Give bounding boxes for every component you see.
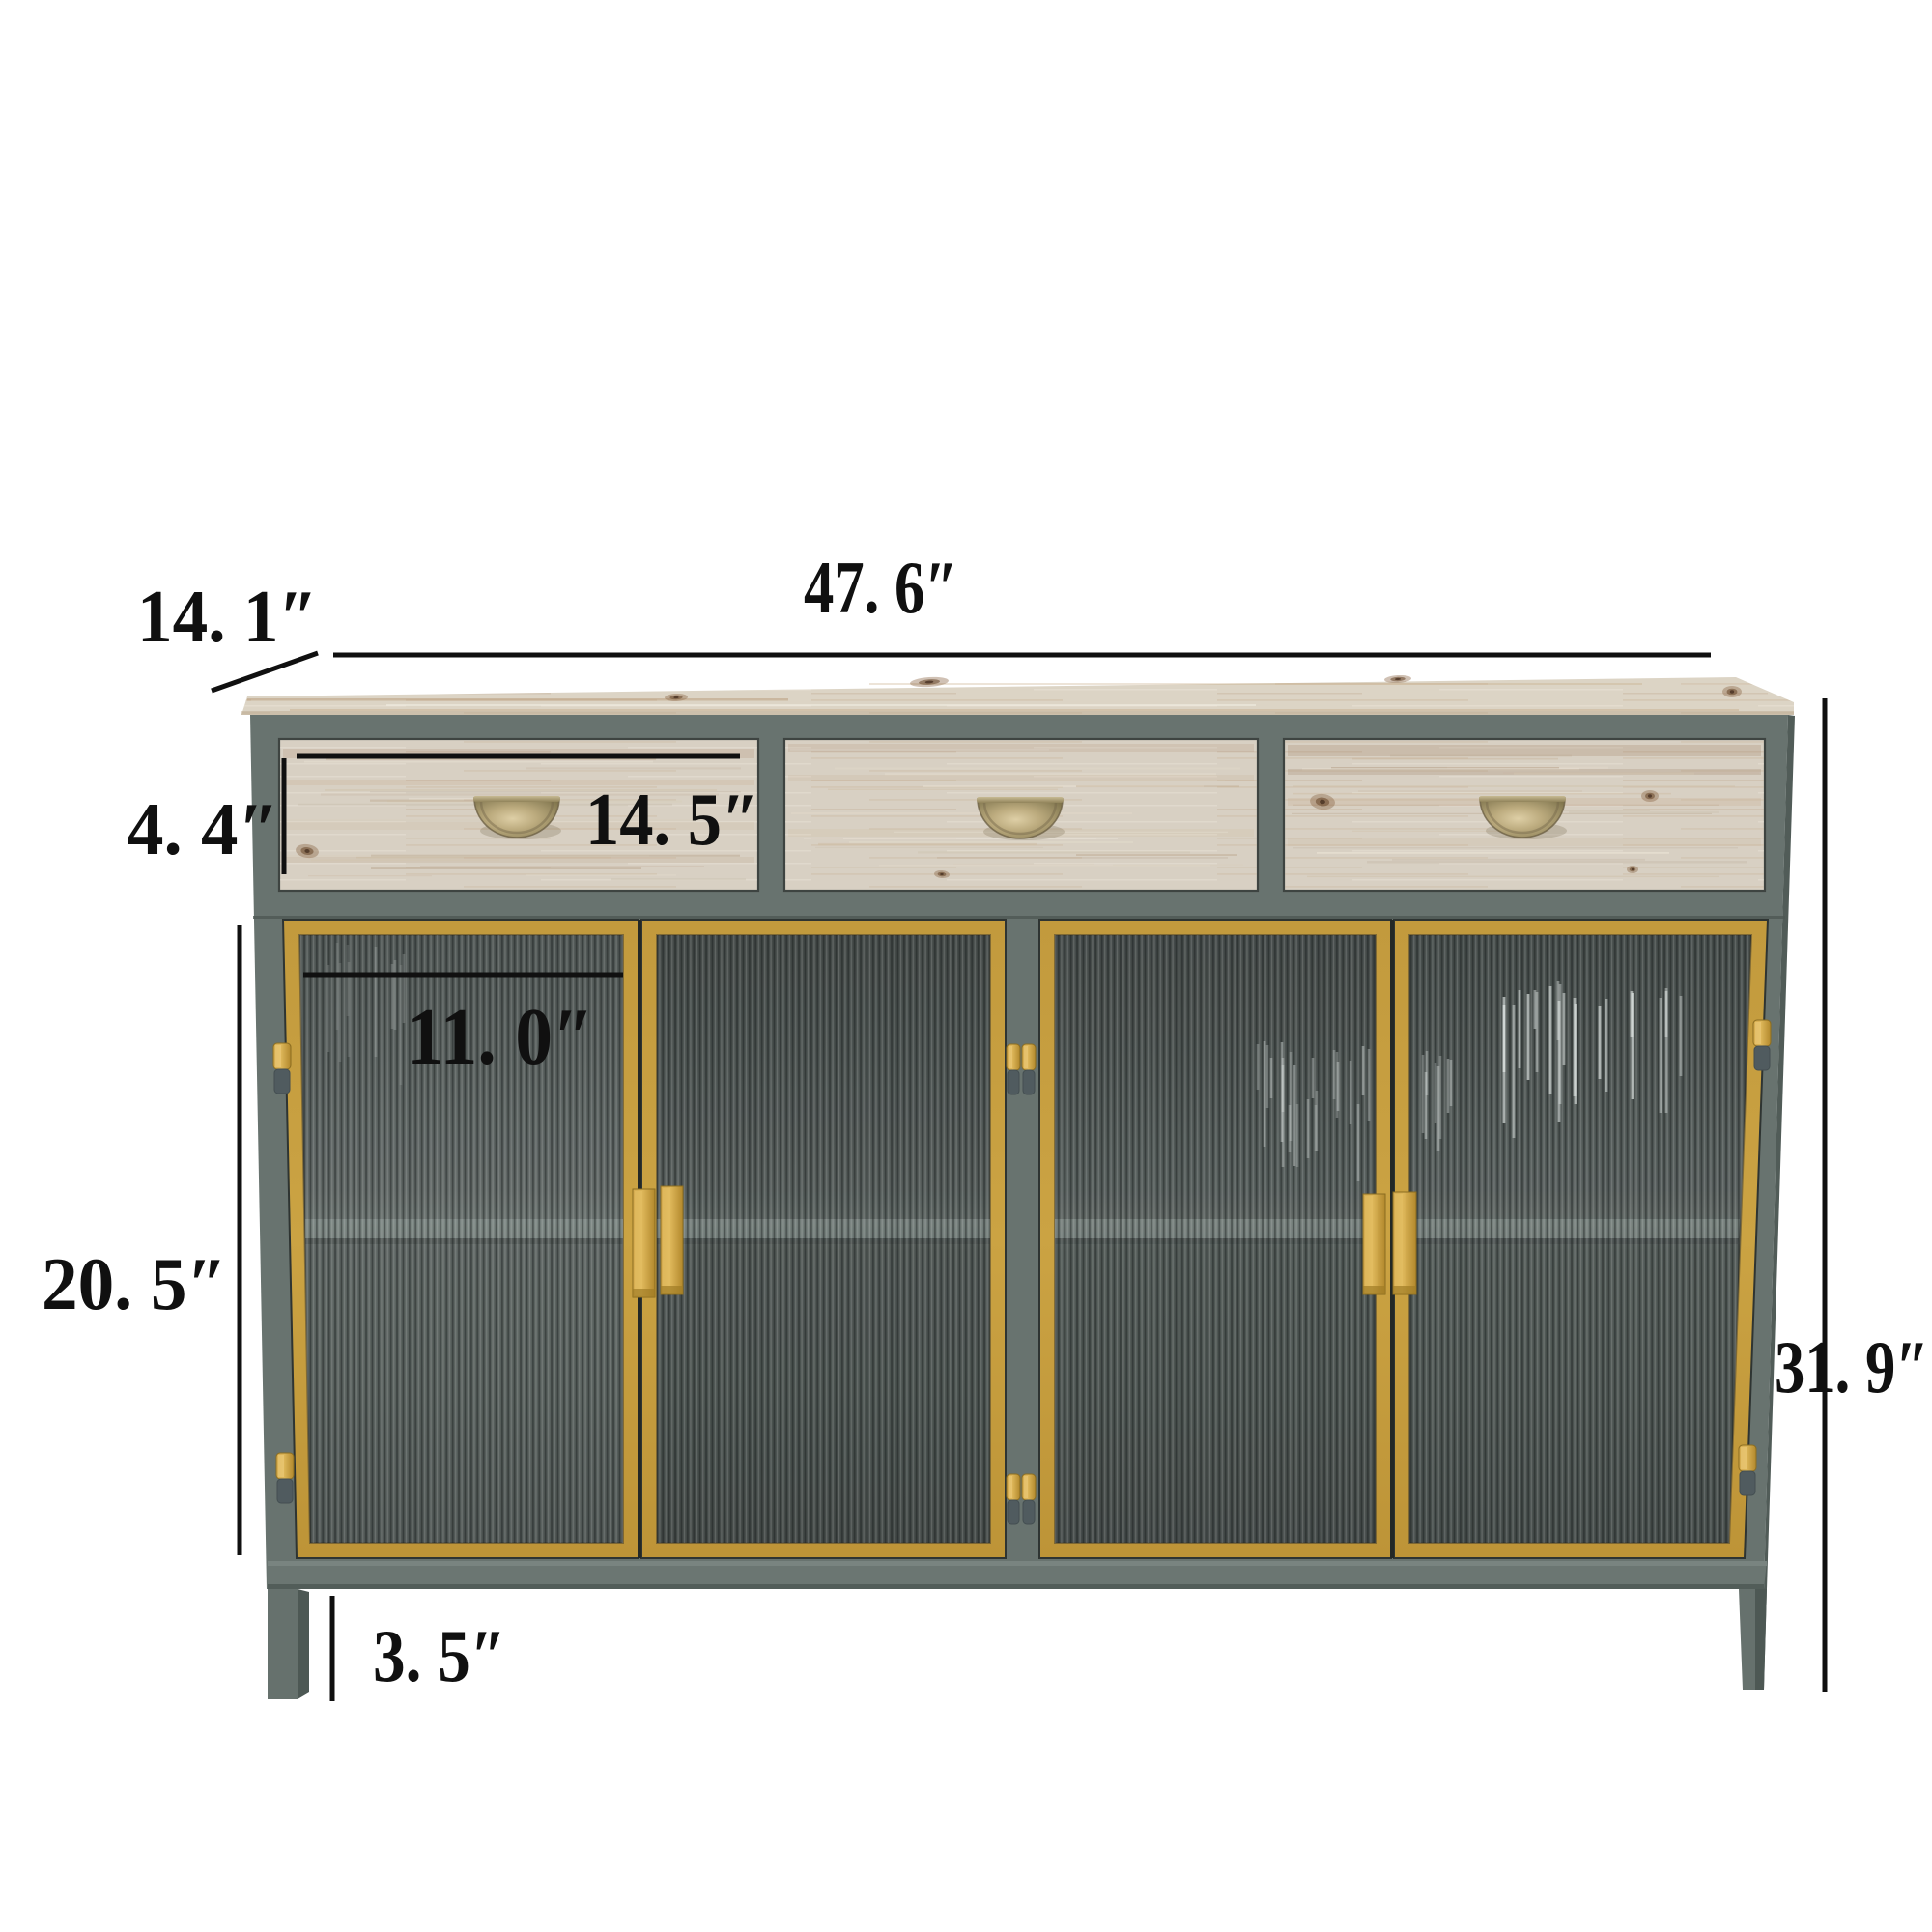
svg-text:20. 5″: 20. 5″ — [42, 1242, 227, 1325]
svg-text:14. 1″: 14. 1″ — [137, 575, 318, 658]
svg-text:4. 4″: 4. 4″ — [127, 787, 279, 870]
svg-text:47. 6″: 47. 6″ — [804, 546, 958, 629]
svg-text:3. 5″: 3. 5″ — [373, 1614, 506, 1697]
svg-text:14. 5″: 14. 5″ — [585, 778, 759, 861]
svg-text:11. 0″: 11. 0″ — [407, 992, 594, 1082]
svg-text:31. 9″: 31. 9″ — [1775, 1325, 1929, 1408]
